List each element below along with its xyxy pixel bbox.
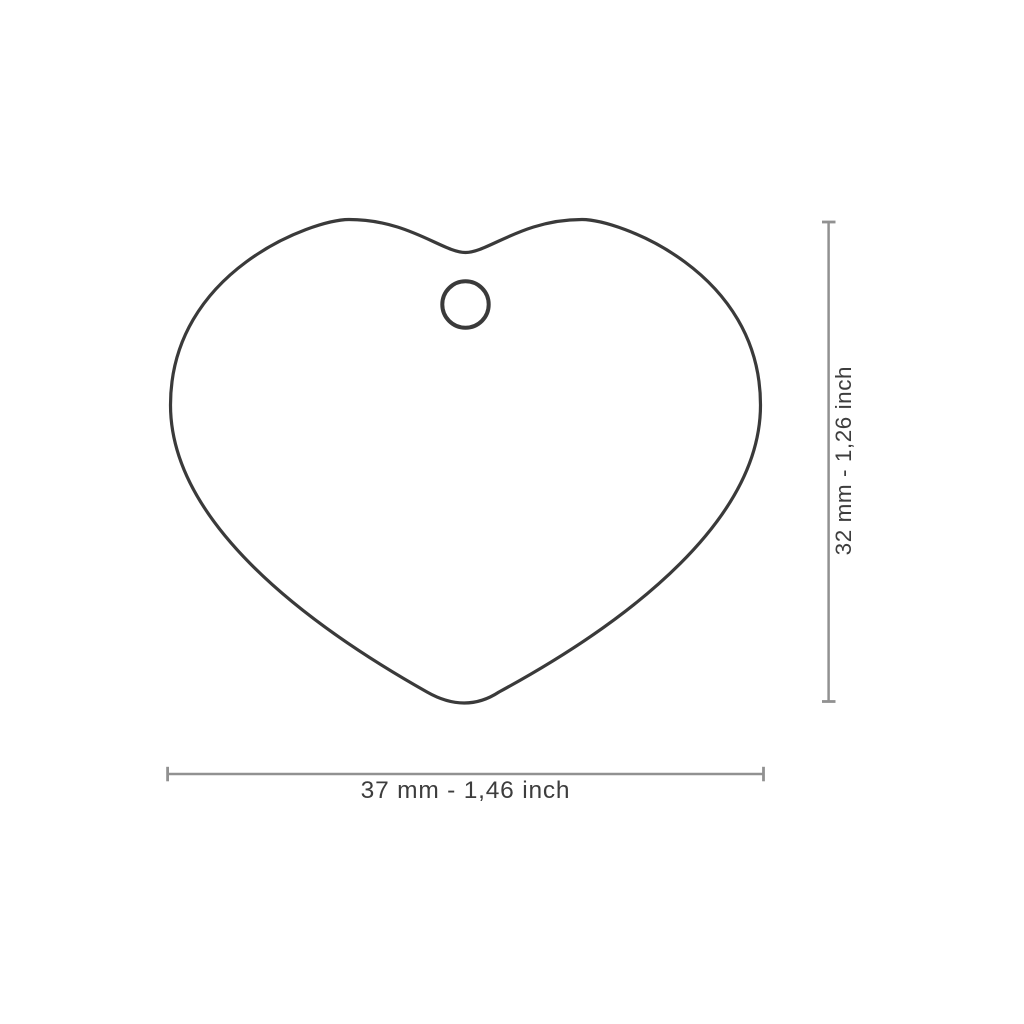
svg-text:37 mm - 1,46 inch: 37 mm - 1,46 inch [361,777,571,804]
svg-text:32 mm - 1,26 inch: 32 mm - 1,26 inch [831,366,856,555]
